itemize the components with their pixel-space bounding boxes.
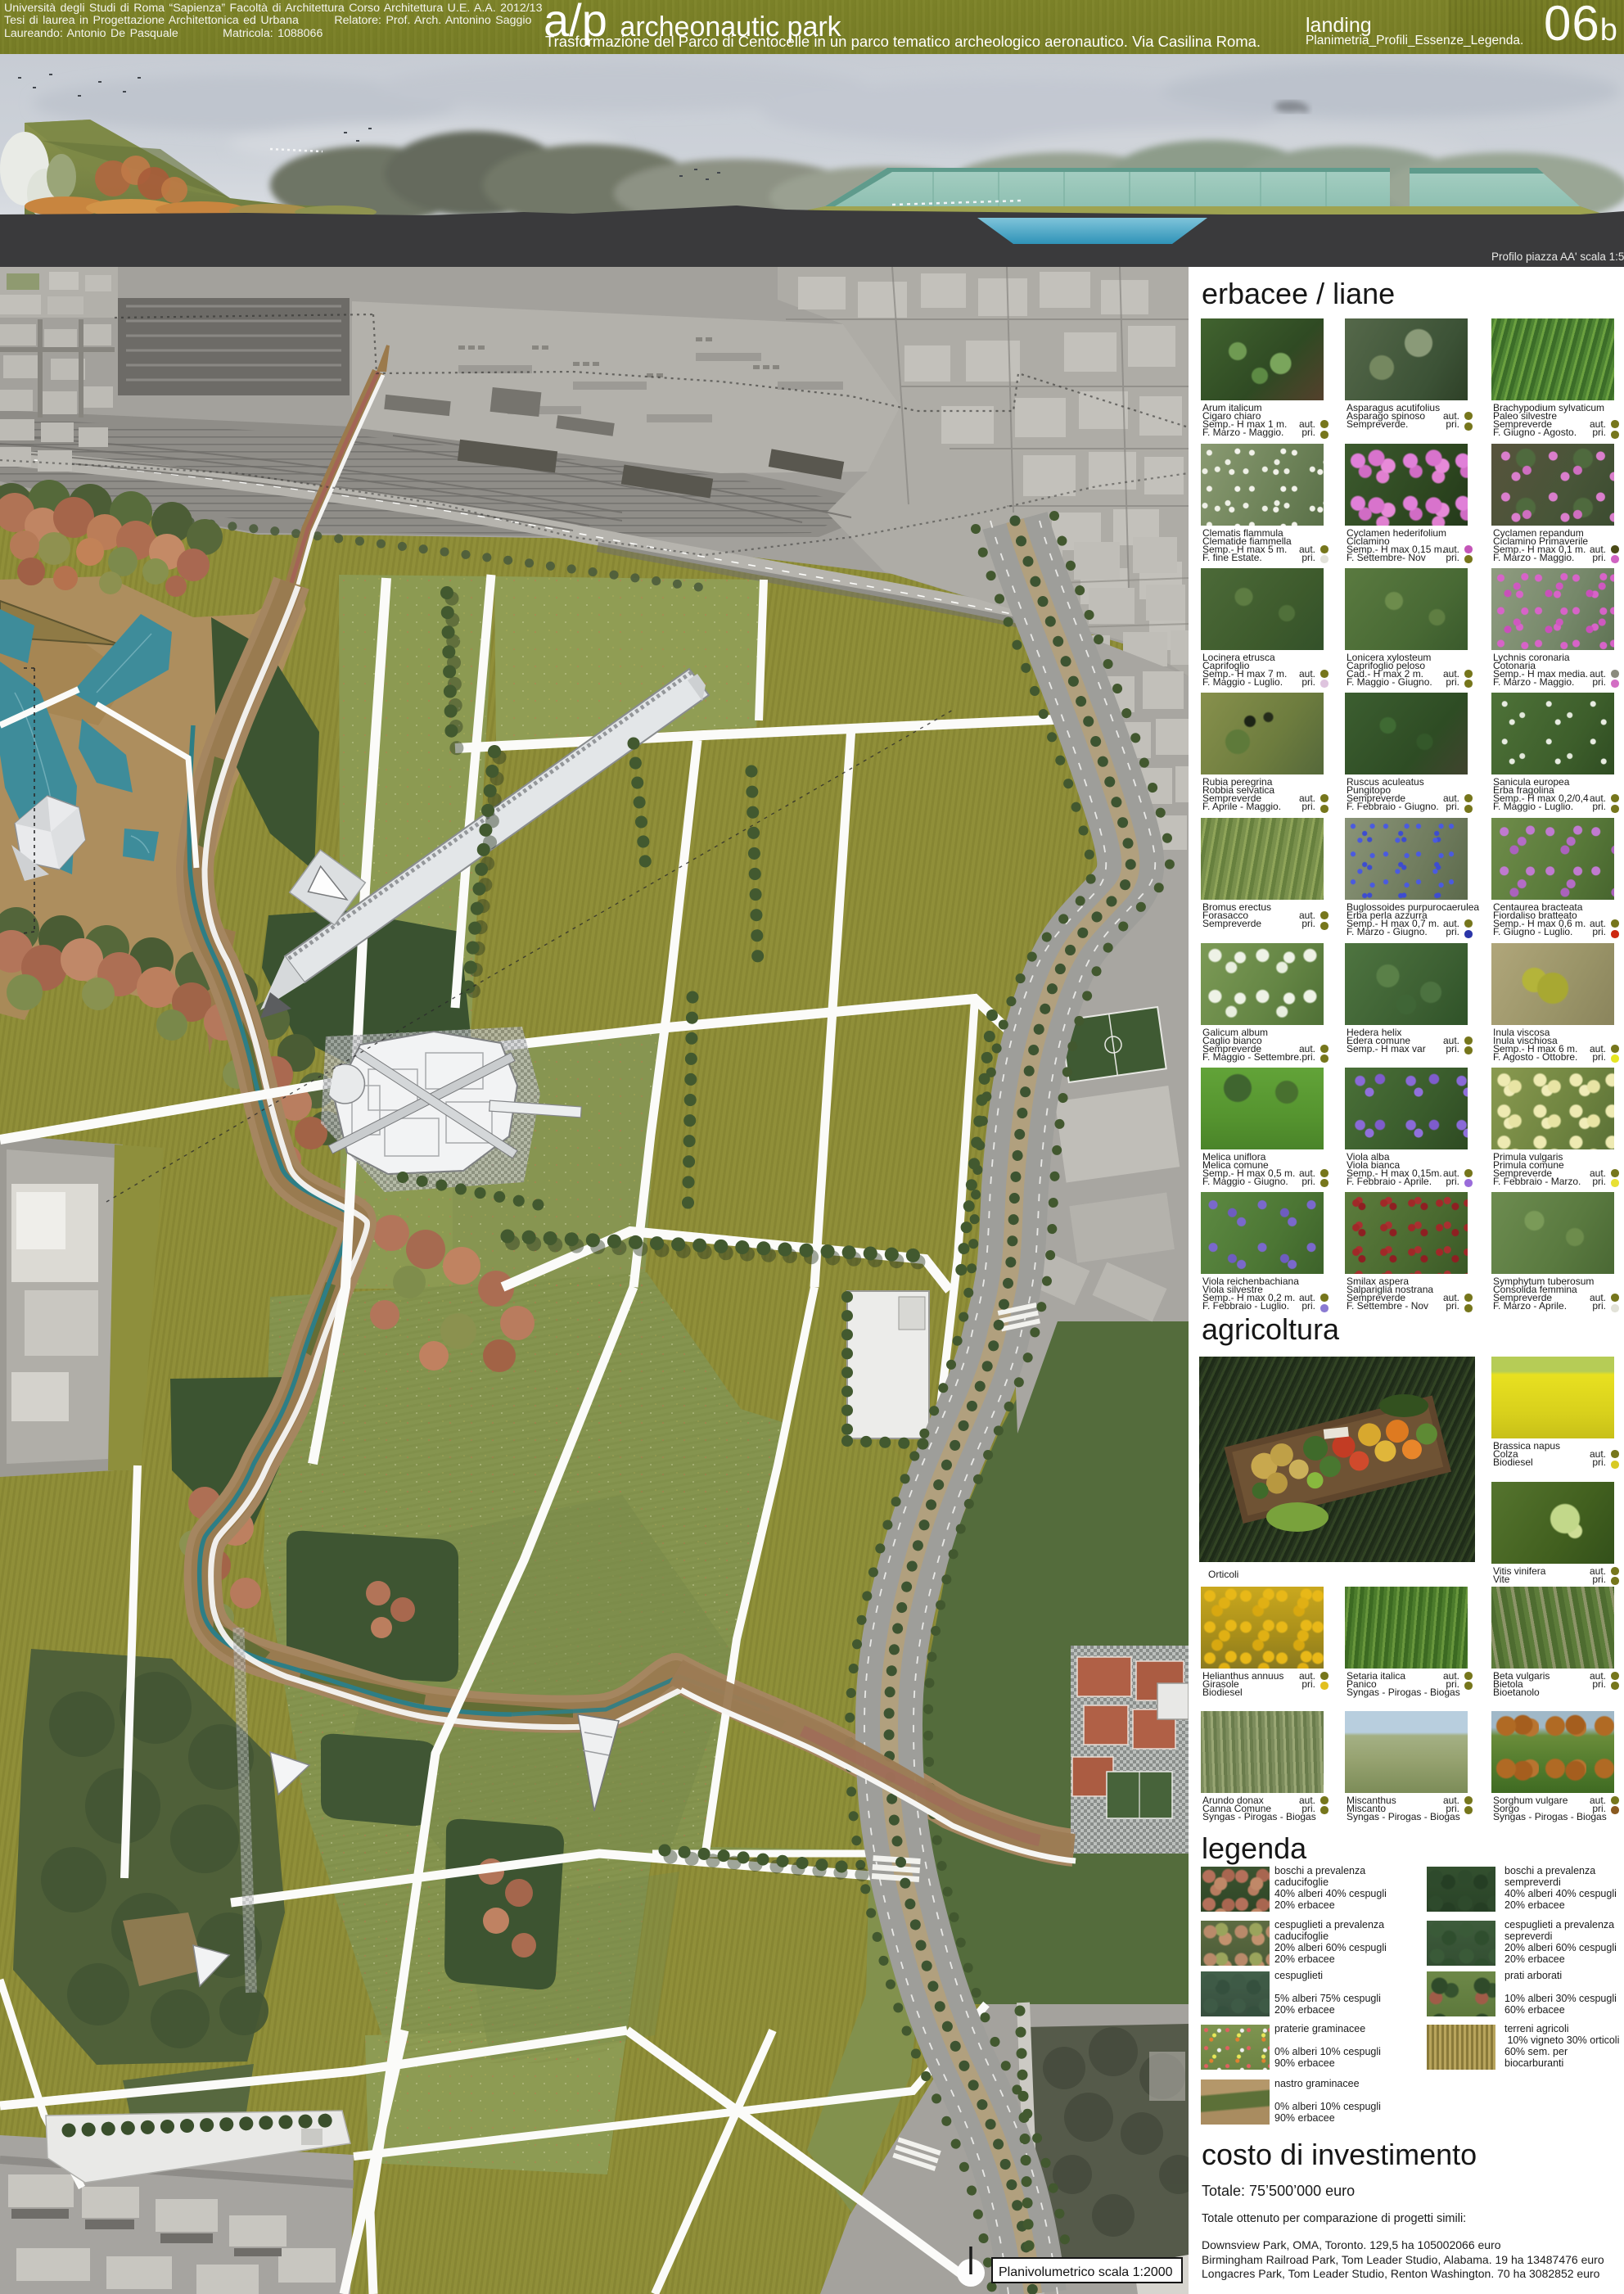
svg-text:Planivolumetrico scala 1:2000: Planivolumetrico scala 1:2000 [999, 2265, 1173, 2279]
svg-text:Profilo piazza AA' scala 1:500: Profilo piazza AA' scala 1:500 [1491, 251, 1624, 263]
